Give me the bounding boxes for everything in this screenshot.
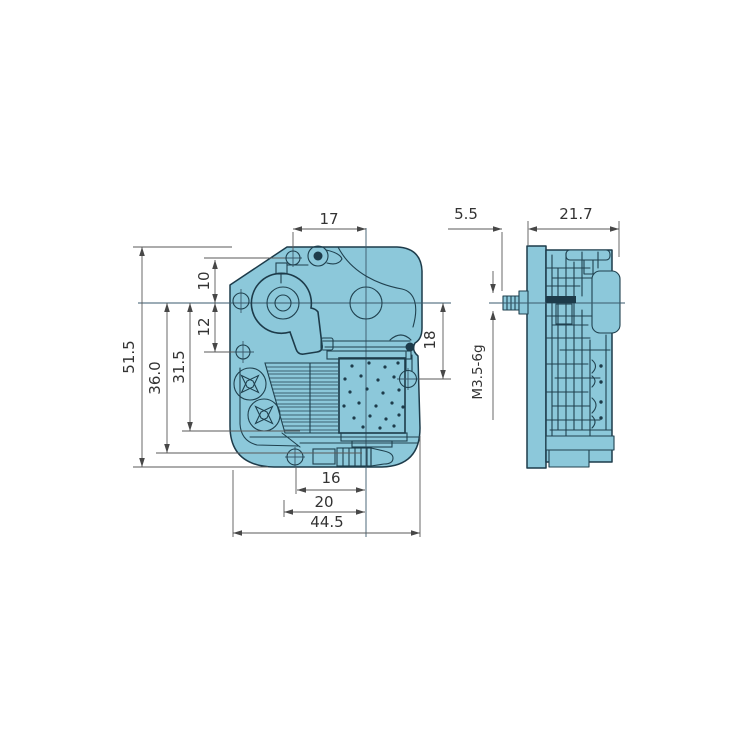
side-base-plate	[527, 246, 546, 468]
side-spring-housing	[592, 271, 620, 333]
dim-label-21-7: 21.7	[559, 205, 592, 223]
front-body	[230, 247, 422, 467]
dim-depth-21-7: 21.7	[537, 205, 619, 257]
winding-gear-edge	[546, 296, 576, 303]
side-bottom-foot	[549, 450, 589, 467]
dim-right-18: 18	[419, 303, 451, 379]
drawing-canvas: 17 10 12 31.5	[0, 0, 750, 750]
dim-bottom-16: 16	[296, 467, 365, 494]
dim-label-44-5: 44.5	[310, 513, 343, 531]
dim-offset-12: 12	[195, 303, 234, 352]
dim-label-51-5: 51.5	[120, 340, 138, 373]
dim-label-20: 20	[314, 493, 333, 511]
dim-label-16: 16	[321, 469, 340, 487]
dim-label-17: 17	[319, 210, 338, 228]
winding-shaft	[503, 291, 528, 314]
technical-drawing: 17 10 12 31.5	[0, 0, 750, 750]
dim-label-31-5: 31.5	[170, 350, 188, 383]
pivot-pin	[406, 343, 415, 352]
dim-top-width: 17	[293, 210, 366, 250]
dim-label-12: 12	[195, 317, 213, 336]
dim-label-18: 18	[421, 330, 439, 349]
thread-callout: M3.5-6g	[470, 271, 496, 420]
dim-label-5-5: 5.5	[454, 205, 478, 223]
side-view	[489, 246, 625, 468]
dim-shaft-5-5: 5.5	[448, 205, 537, 291]
dim-label-36: 36.0	[146, 361, 164, 394]
side-bottom-flange	[546, 436, 614, 450]
thread-label: M3.5-6g	[470, 344, 486, 399]
dim-label-10: 10	[195, 271, 213, 290]
